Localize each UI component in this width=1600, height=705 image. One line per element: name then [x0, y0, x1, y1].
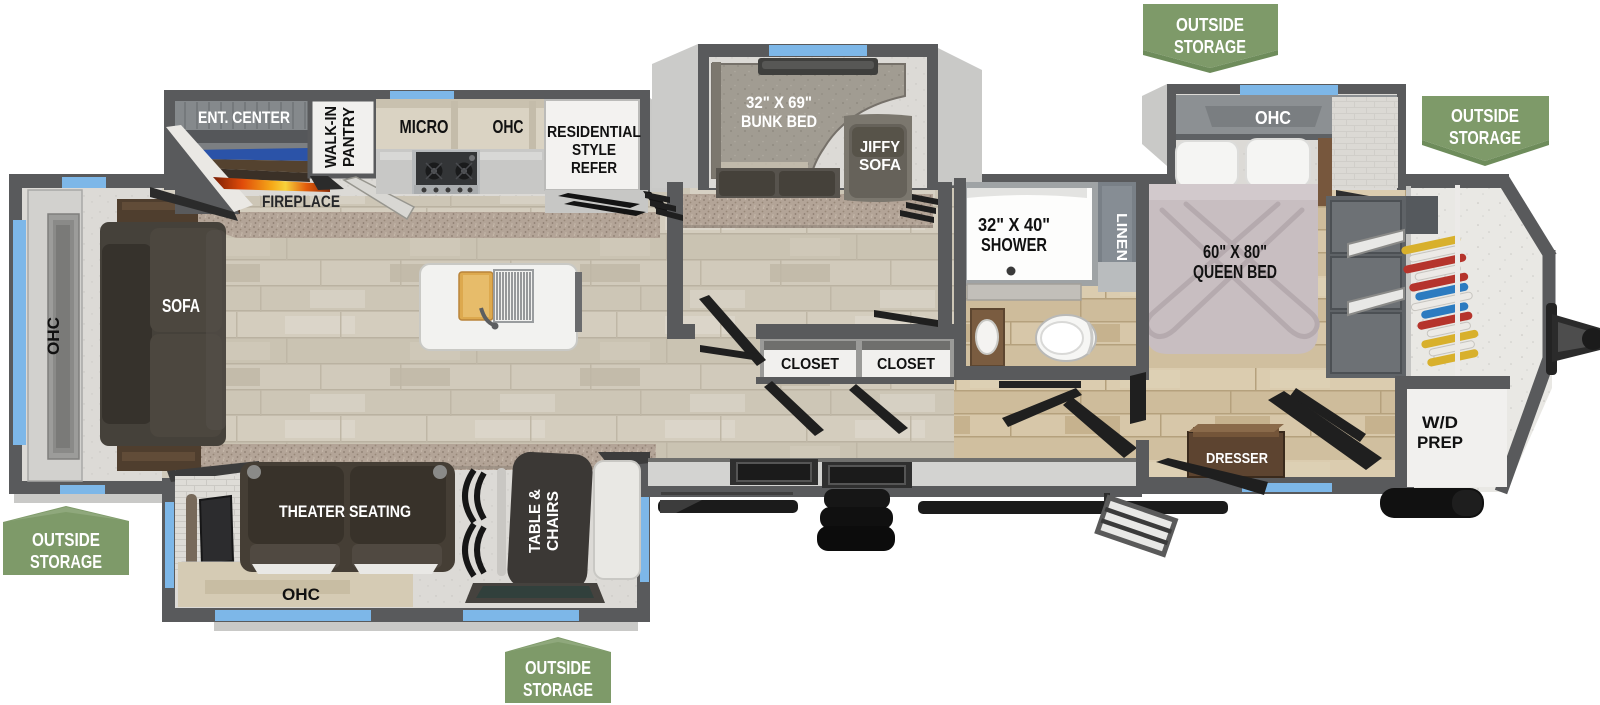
svg-text:CLOSET: CLOSET [877, 356, 935, 373]
svg-text:STORAGE: STORAGE [30, 552, 102, 572]
svg-text:OHC: OHC [282, 585, 320, 604]
svg-text:OUTSIDE: OUTSIDE [1451, 106, 1519, 126]
svg-text:WALK-IN: WALK-IN [323, 106, 340, 168]
svg-text:CLOSET: CLOSET [781, 356, 839, 373]
svg-text:32" X 40": 32" X 40" [978, 215, 1050, 235]
svg-text:OUTSIDE: OUTSIDE [32, 530, 100, 550]
svg-text:SOFA: SOFA [162, 296, 200, 316]
svg-text:REFER: REFER [571, 160, 617, 177]
svg-text:THEATER SEATING: THEATER SEATING [279, 502, 411, 521]
svg-text:PANTRY: PANTRY [341, 106, 358, 167]
svg-text:ENT. CENTER: ENT. CENTER [198, 108, 290, 127]
svg-text:RESIDENTIAL: RESIDENTIAL [547, 124, 641, 141]
svg-text:FIREPLACE: FIREPLACE [262, 192, 340, 211]
svg-text:TABLE &: TABLE & [527, 489, 544, 553]
svg-text:OUTSIDE: OUTSIDE [1176, 15, 1244, 35]
svg-text:OHC: OHC [493, 117, 524, 137]
svg-text:JIFFY: JIFFY [860, 139, 900, 156]
svg-text:OHC: OHC [1255, 108, 1291, 128]
svg-text:STORAGE: STORAGE [523, 680, 593, 700]
svg-text:STYLE: STYLE [572, 142, 616, 159]
svg-text:OUTSIDE: OUTSIDE [525, 658, 591, 678]
svg-text:W/D: W/D [1422, 413, 1458, 432]
svg-text:LINEN: LINEN [1113, 213, 1130, 261]
svg-text:60" X 80": 60" X 80" [1203, 242, 1267, 262]
svg-text:32" X 69": 32" X 69" [746, 93, 812, 112]
svg-text:SOFA: SOFA [859, 157, 901, 174]
svg-text:OHC: OHC [44, 317, 63, 355]
svg-text:DRESSER: DRESSER [1206, 450, 1268, 467]
svg-text:BUNK BED: BUNK BED [741, 112, 817, 131]
svg-text:MICRO: MICRO [400, 117, 449, 137]
svg-text:PREP: PREP [1417, 433, 1463, 452]
svg-text:STORAGE: STORAGE [1174, 37, 1246, 57]
svg-text:QUEEN BED: QUEEN BED [1193, 262, 1277, 282]
svg-text:STORAGE: STORAGE [1449, 128, 1521, 148]
svg-text:CHAIRS: CHAIRS [545, 491, 562, 551]
svg-text:SHOWER: SHOWER [981, 235, 1047, 255]
